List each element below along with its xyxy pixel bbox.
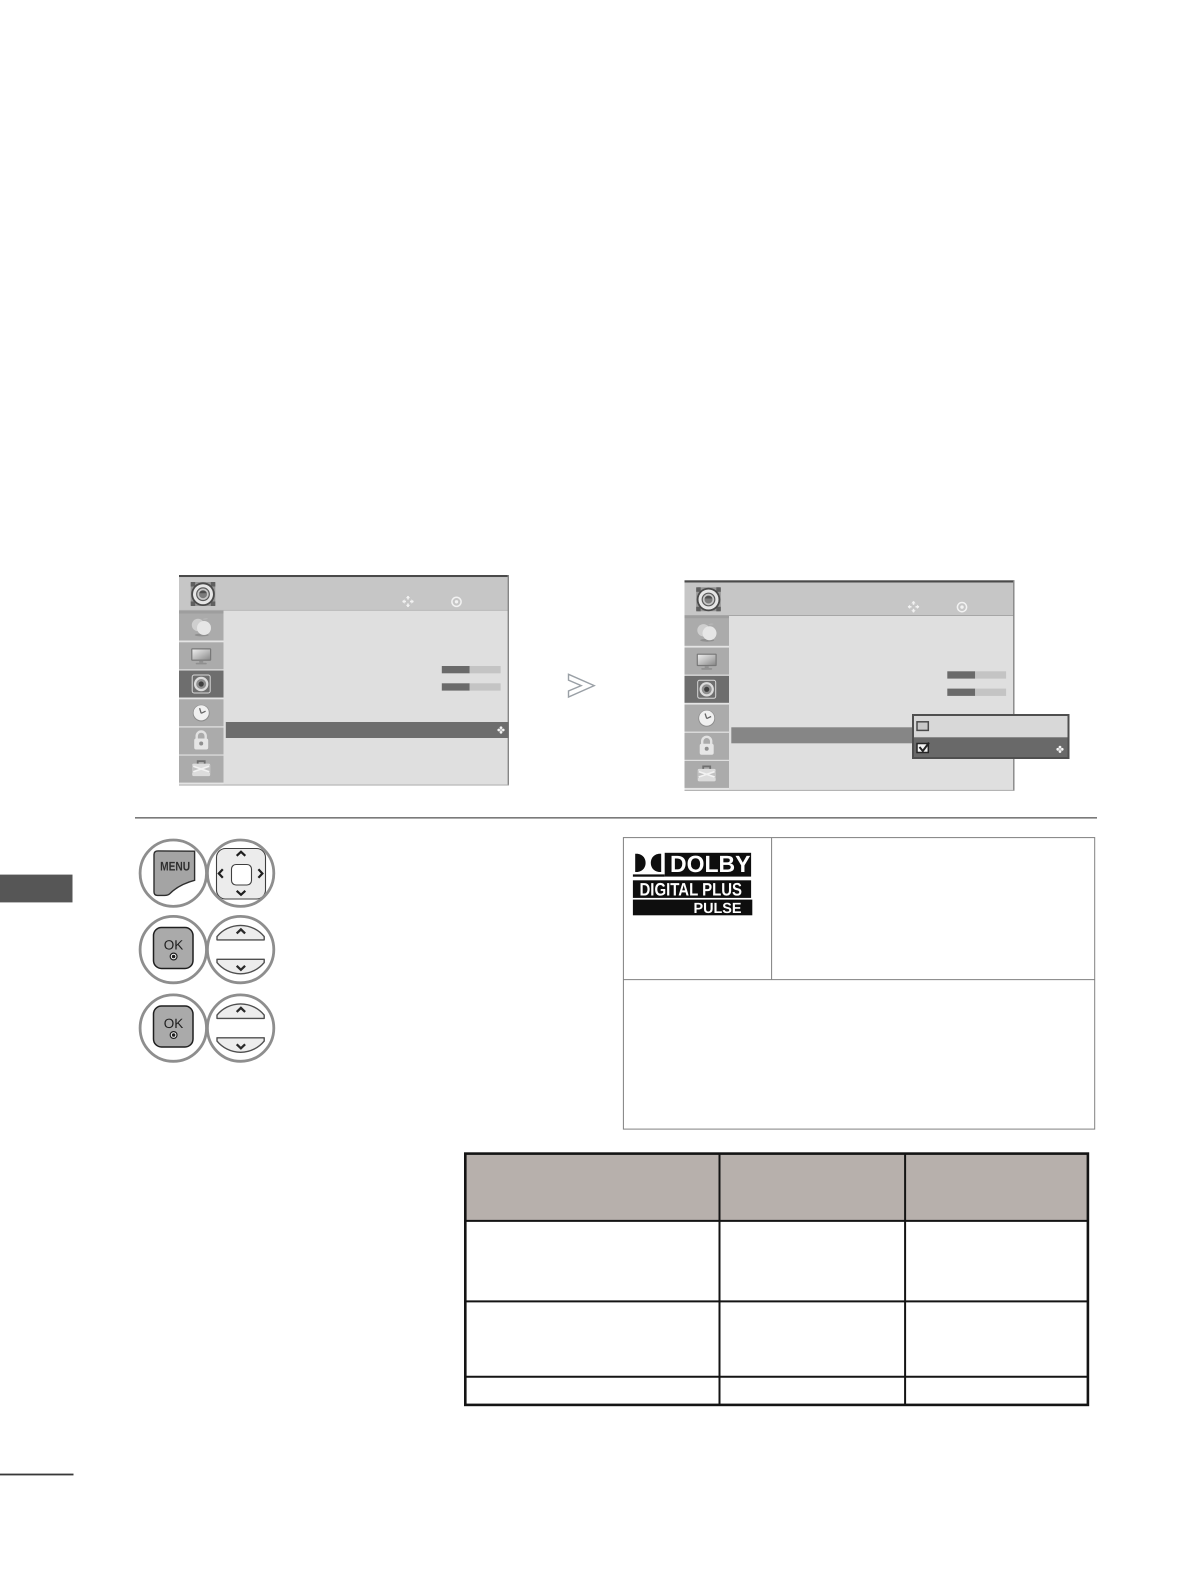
svg-text:DOLBY: DOLBY — [670, 851, 751, 877]
svg-text:MENU: MENU — [160, 860, 190, 874]
svg-text:DIGITAL PLUS: DIGITAL PLUS — [640, 879, 743, 899]
svg-text:PULSE: PULSE — [694, 901, 742, 917]
